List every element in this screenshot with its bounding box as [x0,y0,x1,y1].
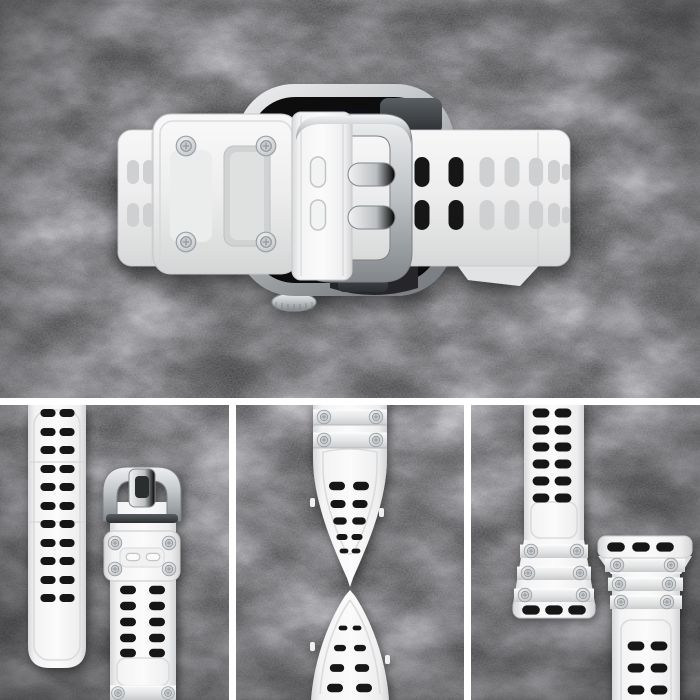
panel-left-strap-tail [28,405,86,668]
front-buckle [103,467,181,523]
lug-slots [607,542,674,551]
strap-keeper-plate [153,114,299,274]
divider-vertical-right [464,403,471,700]
divider-horizontal [0,398,700,405]
buckle-hinge-bar [106,514,178,523]
front-keeper [104,531,180,581]
edge-notch [379,508,384,517]
edge-notch [310,498,315,507]
connector-strap-b [598,536,692,700]
buckle-prong [348,163,395,186]
product-photo-stage [0,0,700,700]
buckle-prong [348,206,395,229]
panel-left-buckle-strap [103,467,181,700]
product-photo [0,0,700,700]
divider-vertical-left [229,403,236,700]
connector-strap-a [513,405,595,618]
strap-slider [292,112,352,280]
lug-slots [522,605,586,614]
edge-notch [385,655,390,664]
edge-notch [310,642,315,651]
buckle [292,112,412,282]
keeper-recess [170,150,212,242]
keeper-window-inner [230,152,264,240]
